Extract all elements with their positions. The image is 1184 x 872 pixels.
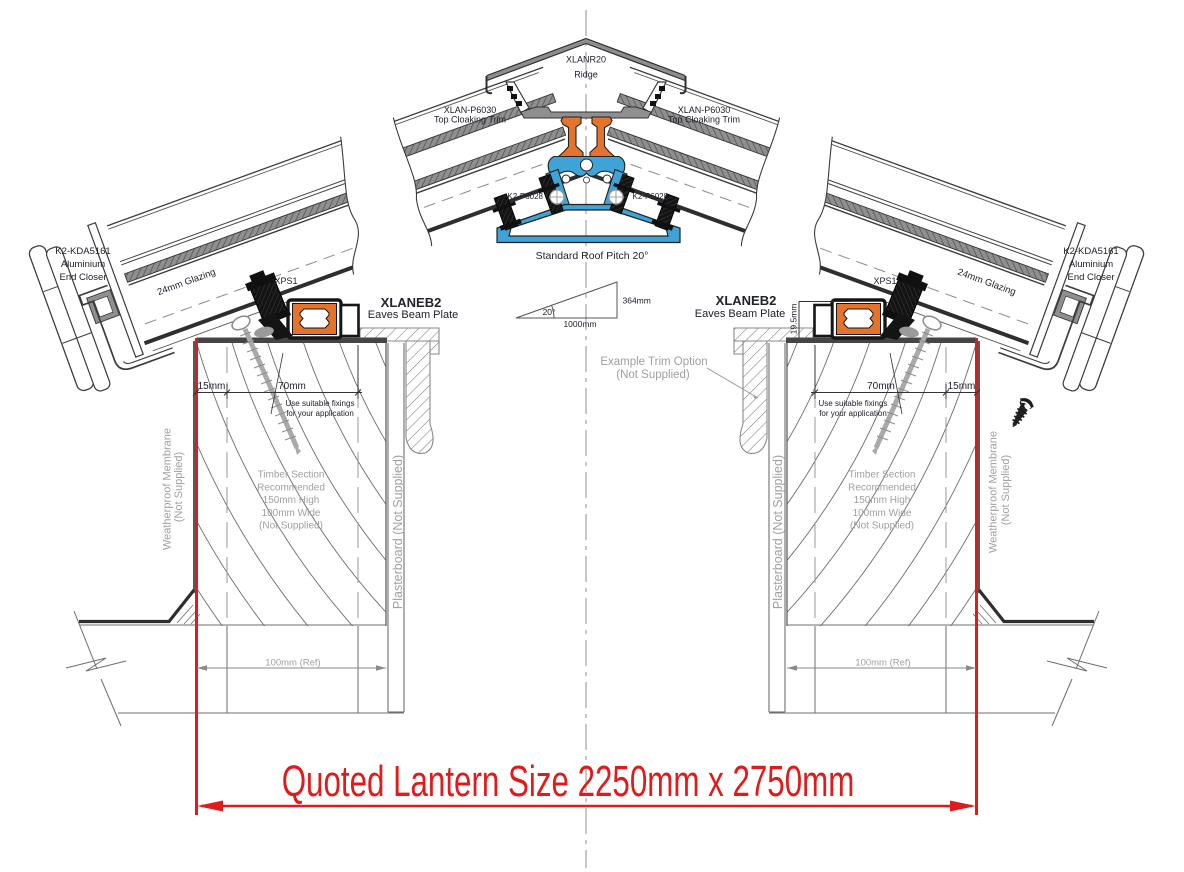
svg-text:Plasterboard (Not Supplied): Plasterboard (Not Supplied) [391, 455, 405, 609]
svg-text:Recommended: Recommended [257, 482, 325, 493]
svg-text:15mm: 15mm [198, 381, 226, 392]
svg-text:Timber Section: Timber Section [849, 470, 916, 481]
svg-text:for your application: for your application [819, 409, 887, 418]
svg-text:1000mm: 1000mm [563, 319, 596, 329]
svg-text:K2-KDA5161: K2-KDA5161 [55, 246, 110, 257]
svg-text:150mm High: 150mm High [263, 495, 320, 506]
svg-text:20°: 20° [543, 307, 556, 317]
svg-text:Use suitable fixings: Use suitable fixings [286, 399, 355, 408]
svg-text:Standard Roof Pitch 20°: Standard Roof Pitch 20° [536, 250, 649, 262]
svg-text:Quoted Lantern Size 2250mm x 2: Quoted Lantern Size 2250mm x 2750mm [282, 758, 855, 806]
svg-text:XPS1: XPS1 [274, 276, 297, 286]
svg-text:K2-KDA5161: K2-KDA5161 [1063, 246, 1118, 257]
svg-text:XLAN-P6030: XLAN-P6030 [678, 105, 731, 115]
svg-text:(Not Supplied): (Not Supplied) [850, 521, 914, 532]
svg-text:Aluminium: Aluminium [1069, 259, 1113, 270]
svg-text:for your application: for your application [286, 409, 354, 418]
svg-text:Use suitable fixings: Use suitable fixings [819, 399, 888, 408]
svg-text:Eaves Beam Plate: Eaves Beam Plate [368, 309, 459, 321]
svg-text:Aluminium: Aluminium [61, 259, 105, 270]
svg-text:Weatherproof Membrane: Weatherproof Membrane [162, 428, 174, 550]
svg-text:70mm: 70mm [278, 381, 306, 392]
svg-text:(Not Supplied): (Not Supplied) [173, 452, 185, 522]
svg-text:100mm (Ref): 100mm (Ref) [855, 658, 910, 669]
svg-text:K2-P6028: K2-P6028 [633, 192, 669, 201]
svg-text:(Not Supplied): (Not Supplied) [1000, 455, 1012, 525]
svg-text:XLANEB2: XLANEB2 [716, 293, 777, 308]
svg-text:Weatherproof Membrane: Weatherproof Membrane [988, 431, 1000, 553]
svg-text:XLANR20: XLANR20 [566, 55, 606, 65]
svg-text:364mm: 364mm [623, 296, 651, 306]
svg-text:100mm (Ref): 100mm (Ref) [265, 658, 320, 669]
svg-text:Eaves Beam Plate: Eaves Beam Plate [695, 308, 786, 320]
svg-text:Ridge: Ridge [574, 70, 598, 80]
svg-text:K2-P6028: K2-P6028 [507, 192, 543, 201]
svg-text:70mm: 70mm [867, 381, 895, 392]
svg-text:19.5mm: 19.5mm [789, 304, 799, 335]
svg-text:End Closer: End Closer [1068, 272, 1115, 283]
svg-text:XLANEB2: XLANEB2 [381, 295, 442, 310]
svg-text:Example Trim Option: Example Trim Option [600, 356, 707, 368]
svg-text:150mm High: 150mm High [854, 495, 911, 506]
svg-text:Top Cloaking Trim: Top Cloaking Trim [668, 115, 740, 125]
svg-text:(Not Supplied): (Not Supplied) [259, 521, 323, 532]
svg-text:End Closer: End Closer [60, 272, 107, 283]
svg-text:XPS1: XPS1 [873, 276, 896, 286]
svg-text:100mm Wide: 100mm Wide [262, 508, 321, 519]
svg-text:Plasterboard (Not Supplied): Plasterboard (Not Supplied) [771, 455, 785, 609]
svg-text:Top Cloaking Trim: Top Cloaking Trim [434, 115, 506, 125]
svg-text:100mm Wide: 100mm Wide [853, 508, 912, 519]
svg-text:(Not Supplied): (Not Supplied) [616, 369, 690, 381]
svg-text:Timber Section: Timber Section [258, 470, 325, 481]
svg-text:XLAN-P6030: XLAN-P6030 [444, 105, 497, 115]
svg-text:Recommended: Recommended [848, 482, 916, 493]
svg-text:15mm: 15mm [948, 381, 976, 392]
